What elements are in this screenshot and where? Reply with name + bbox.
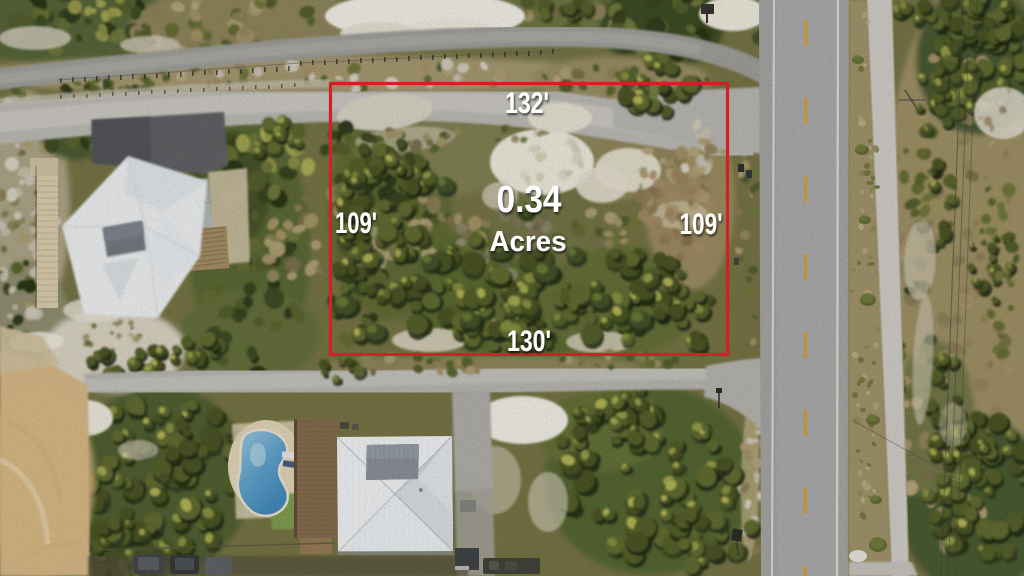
svg-text:Acres: Acres: [490, 226, 567, 258]
svg-text:132': 132': [505, 87, 549, 120]
svg-text:0.34: 0.34: [497, 179, 562, 221]
svg-text:109': 109': [680, 208, 723, 241]
svg-text:109': 109': [335, 207, 377, 240]
svg-text:130': 130': [507, 325, 551, 358]
